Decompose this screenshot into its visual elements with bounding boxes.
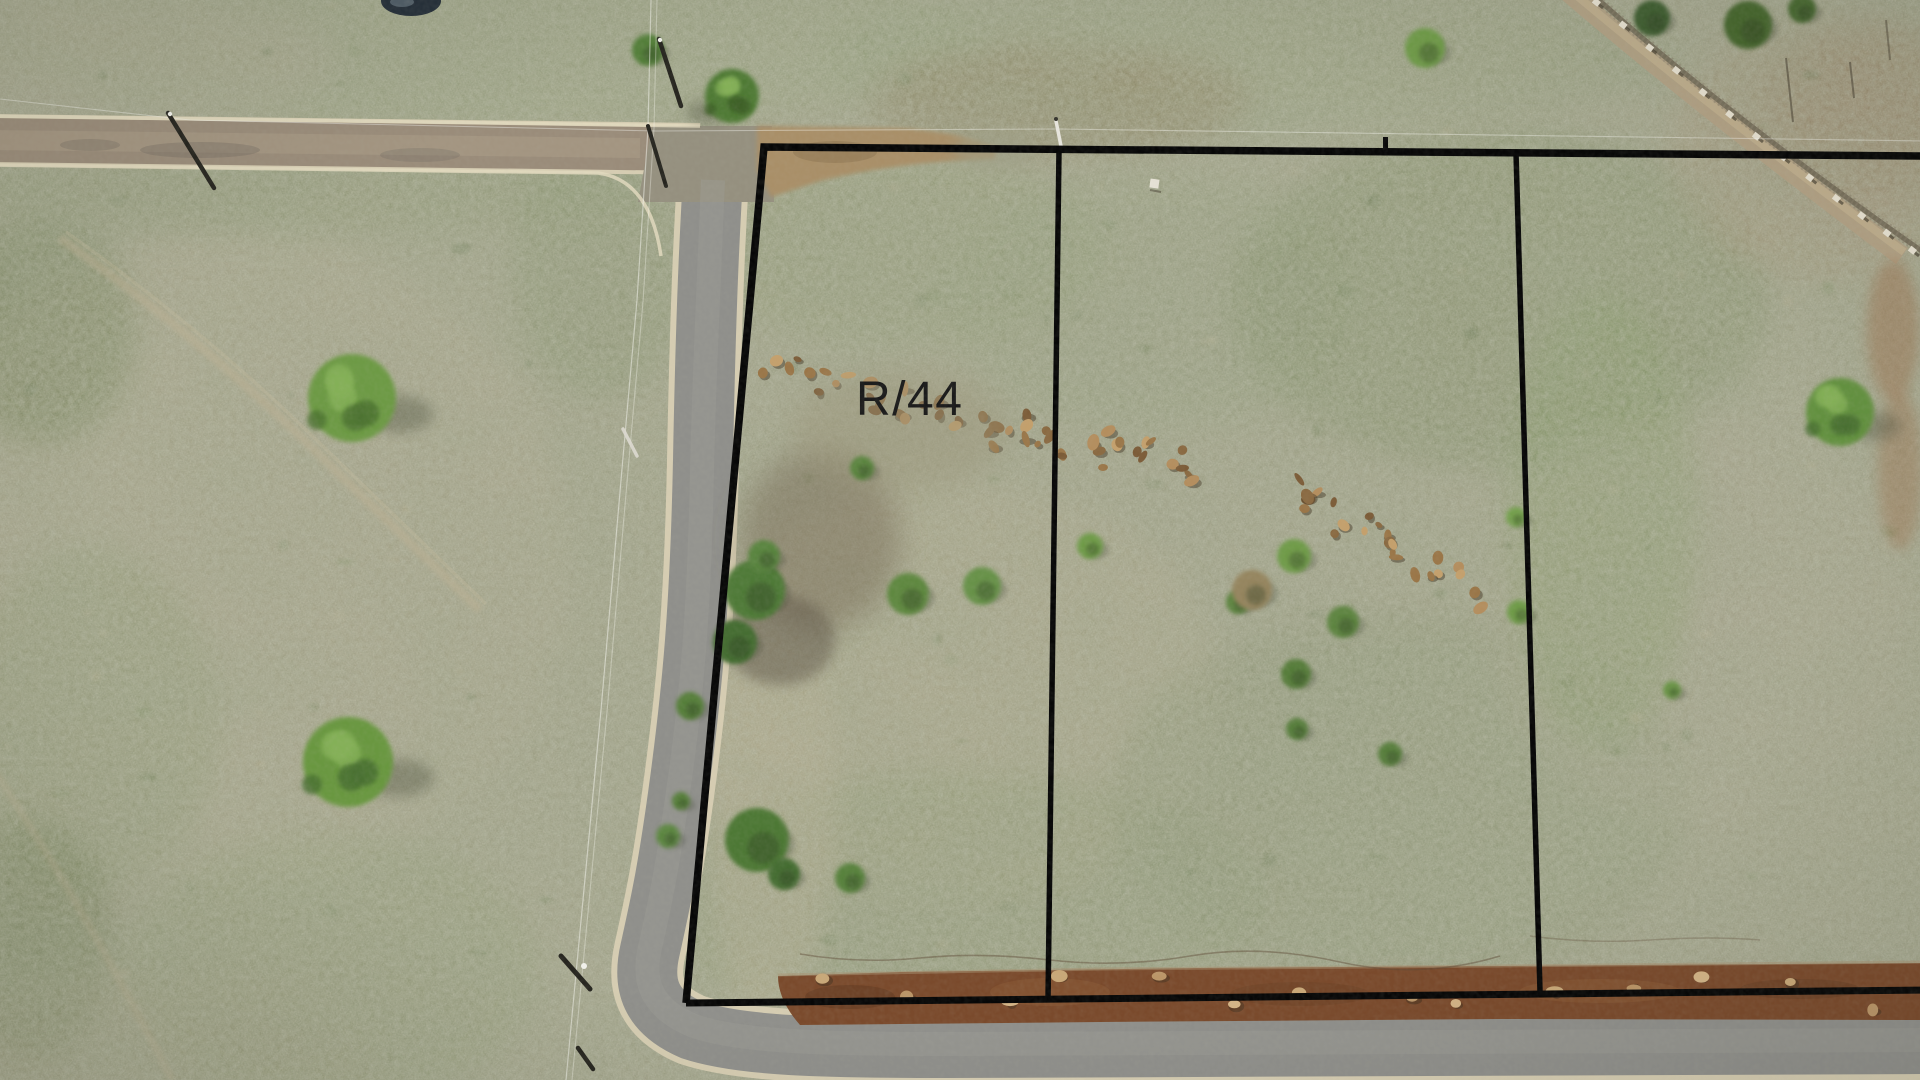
vignette: [0, 0, 1920, 1080]
aerial-photo: R/44: [0, 0, 1920, 1080]
aerial-photo-canvas: R/44: [0, 0, 1920, 1080]
